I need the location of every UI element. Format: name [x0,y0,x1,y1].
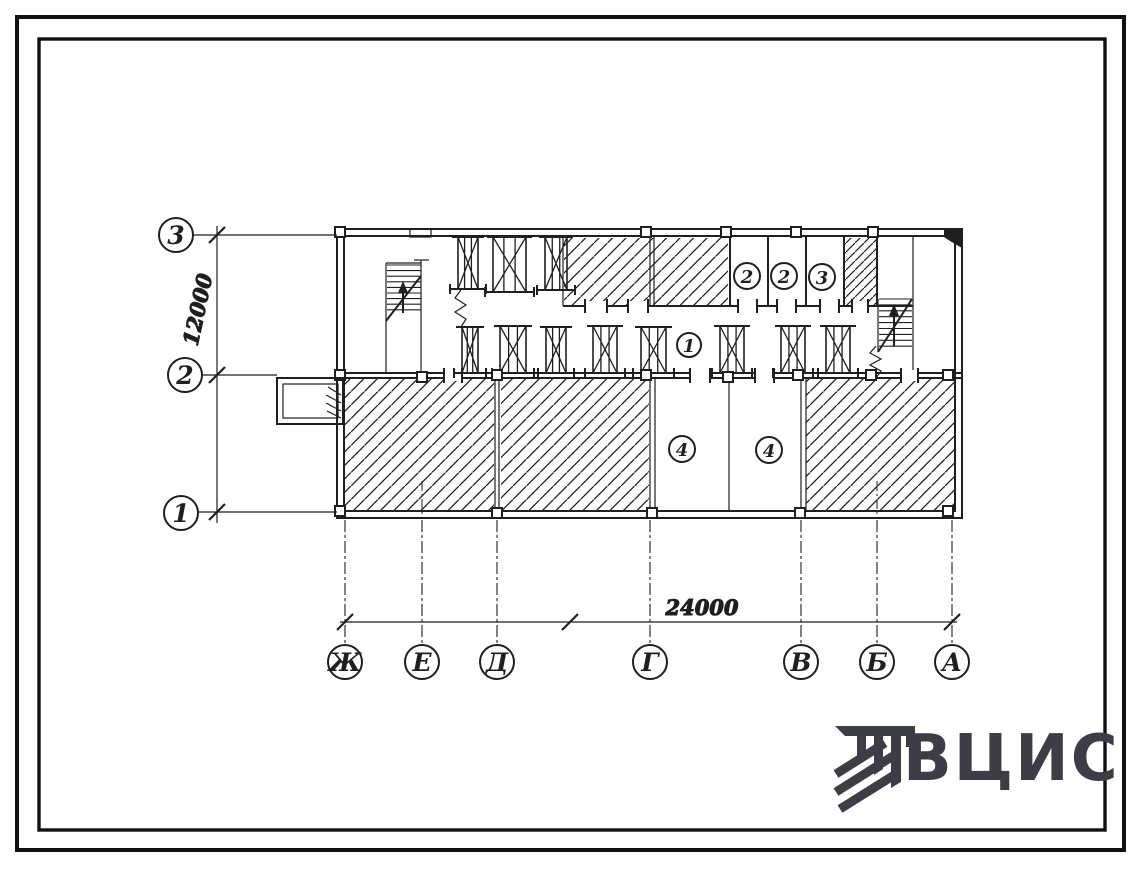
scanned-drawing-page: 24000 12000 3 2 1 Ж Е Д Г В Б А 2 2 3 1 [0,0,1139,869]
room-label: 3 [816,268,829,289]
column-marker [417,372,427,382]
axis-label-a: А [940,648,962,677]
hatch-strip-top-right [845,238,876,306]
column-marker [868,227,878,237]
xbrace-block [585,326,625,378]
axis-label-3: 3 [167,221,184,250]
column-marker [943,370,953,380]
blueprint-canvas: 24000 12000 3 2 1 Ж Е Д Г В Б А 2 2 3 1 [0,0,1139,869]
porch [277,378,343,424]
room-label: 2 [777,267,791,288]
column-marker [647,508,657,518]
hatch-room-right [806,379,954,510]
xbrace-block [633,327,674,378]
col-axis-markers: Ж Е Д Г В Б А [327,645,969,679]
xbrace-block [538,327,574,378]
dim-12000: 12000 [178,271,218,348]
dim-24000: 24000 [664,595,738,620]
axis-label-d: Д [485,648,509,677]
column-marker [492,370,502,380]
room-label: 4 [763,441,776,462]
corner-column [944,229,962,248]
xbrace-block [712,326,752,378]
room-label: 4 [676,440,689,461]
column-marker [791,227,801,237]
hatch-room-left [345,379,494,510]
axis-label-1: 1 [172,499,189,528]
axis-label-2: 2 [175,361,193,390]
door-openings [444,299,918,383]
logo-text: ВЦИС [903,722,1120,796]
porch-hatch [326,387,341,418]
break-line-left [455,290,466,327]
xbrace-block [818,326,858,378]
axis-label-v: В [789,648,811,677]
column-marker [723,372,733,382]
stair-left [386,263,421,372]
column-marker [943,506,953,516]
column-marker [793,370,803,380]
axis-label-b: Б [865,648,887,677]
hatch-room-center [501,379,649,510]
room-label: 1 [683,336,696,357]
xbrace-block [450,237,486,294]
hatch-room-top [564,238,728,305]
axis-label-e: Е [411,648,432,677]
column-marker [335,506,345,516]
logo: ВЦИС [835,722,1120,809]
row-axis-markers: 3 2 1 [159,218,202,530]
room-label: 2 [740,267,754,288]
column-marker [866,370,876,380]
column-marker [795,508,805,518]
column-marker [492,508,502,518]
xbrace-block [485,237,534,297]
column-marker [641,227,651,237]
axis-label-g: Г [640,648,660,677]
column-marker [641,370,651,380]
axis-label-zh: Ж [327,648,363,677]
column-marker [721,227,731,237]
